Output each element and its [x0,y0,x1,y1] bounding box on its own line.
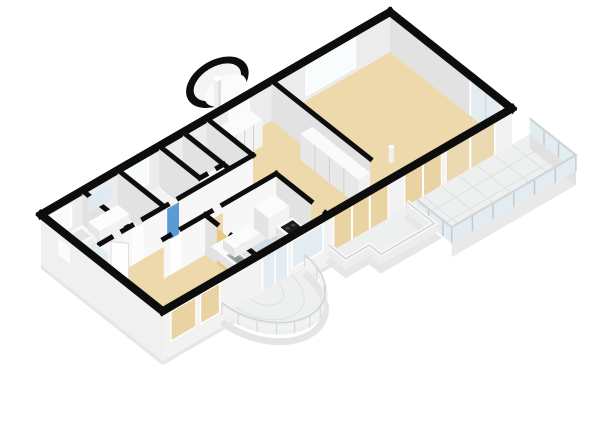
turret-column-shade [218,78,221,108]
living-column-cap [388,145,394,149]
stove-burner [291,224,296,227]
stove-burner [285,227,290,230]
corridor-sw-cap-a [164,235,170,239]
floorplan-canvas [0,0,600,424]
living-column [389,147,394,163]
turret-column-cap [213,76,221,81]
toilet-door [132,223,144,266]
bedroom-sw-door [170,233,182,276]
storage-south-cap-b [218,164,224,168]
floorplan-3d-view[interactable] [0,0,600,424]
corridor-sw-face-a [164,235,170,279]
storage-south-cap-a [200,175,206,178]
